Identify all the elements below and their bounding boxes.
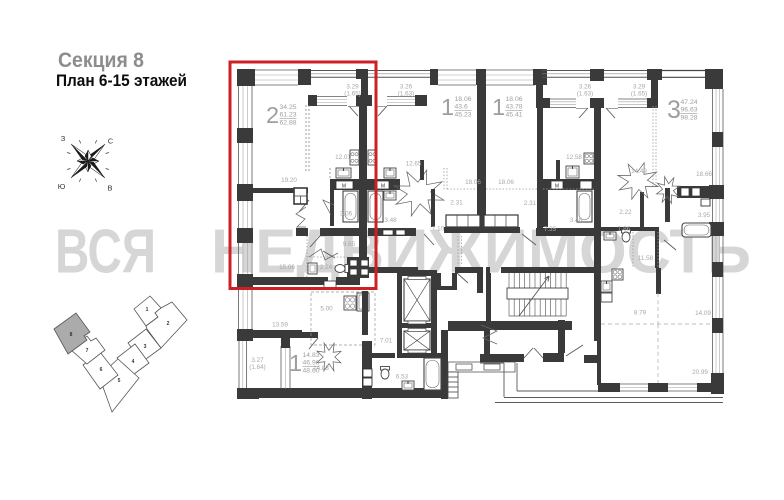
svg-text:М: М (381, 184, 385, 190)
svg-text:18.06: 18.06 (465, 179, 481, 186)
svg-text:47.24: 47.24 (681, 99, 698, 106)
svg-text:13.59: 13.59 (272, 322, 288, 329)
svg-text:3.29: 3.29 (346, 84, 359, 91)
svg-text:3.26: 3.26 (400, 84, 413, 91)
svg-text:34.25: 34.25 (280, 104, 297, 111)
svg-text:(1.63): (1.63) (398, 91, 414, 98)
svg-text:1: 1 (492, 94, 505, 120)
svg-text:19.20: 19.20 (281, 177, 297, 184)
svg-text:В: В (107, 184, 112, 193)
svg-text:11.58: 11.58 (638, 255, 654, 262)
svg-text:5: 5 (118, 378, 121, 384)
svg-text:7.01: 7.01 (380, 338, 393, 345)
svg-text:Секция 8: Секция 8 (58, 49, 144, 72)
svg-text:7: 7 (86, 348, 89, 354)
svg-text:18.06: 18.06 (498, 179, 514, 186)
svg-text:12.65: 12.65 (406, 161, 422, 168)
svg-text:7.10: 7.10 (432, 226, 445, 233)
svg-text:4: 4 (132, 359, 135, 365)
svg-text:14.49: 14.49 (631, 168, 647, 175)
svg-text:С: С (108, 137, 114, 146)
svg-text:8.79: 8.79 (634, 310, 647, 317)
svg-text:(1.65): (1.65) (344, 91, 360, 98)
svg-text:(1.64): (1.64) (249, 364, 265, 371)
svg-text:14.09: 14.09 (695, 310, 711, 317)
svg-text:3: 3 (144, 344, 147, 350)
svg-text:2.31: 2.31 (524, 200, 537, 207)
svg-text:Ю: Ю (58, 182, 66, 191)
svg-text:3.27: 3.27 (251, 357, 264, 364)
svg-text:46.96: 46.96 (303, 360, 320, 367)
svg-text:1: 1 (289, 350, 302, 376)
svg-text:1: 1 (146, 307, 149, 313)
svg-text:6.53: 6.53 (396, 374, 409, 381)
svg-text:3.48: 3.48 (570, 217, 583, 224)
svg-text:План 6-15 этажей: План 6-15 этажей (56, 71, 187, 90)
svg-text:43.6: 43.6 (455, 104, 468, 111)
svg-text:96.63: 96.63 (681, 107, 698, 114)
svg-text:6: 6 (100, 367, 103, 373)
svg-text:8: 8 (70, 332, 73, 338)
svg-text:1.86: 1.86 (618, 226, 631, 233)
svg-text:20.99: 20.99 (692, 369, 708, 376)
svg-text:48.60: 48.60 (303, 368, 320, 375)
svg-text:12.01: 12.01 (335, 154, 351, 161)
svg-text:45.41: 45.41 (506, 112, 523, 119)
svg-text:18.66: 18.66 (696, 171, 712, 178)
svg-text:(1.63): (1.63) (577, 91, 593, 98)
svg-text:З: З (61, 134, 66, 143)
svg-text:3.06: 3.06 (340, 211, 353, 218)
svg-text:2.22: 2.22 (619, 209, 632, 216)
svg-text:(1.65): (1.65) (631, 91, 647, 98)
svg-text:14.83: 14.83 (303, 352, 320, 359)
svg-text:7.35: 7.35 (544, 226, 557, 233)
svg-text:45.23: 45.23 (455, 112, 472, 119)
svg-text:18.06: 18.06 (506, 96, 523, 103)
svg-text:61.23: 61.23 (280, 112, 297, 119)
svg-text:3.29: 3.29 (633, 84, 646, 91)
svg-text:98.28: 98.28 (681, 115, 698, 122)
svg-text:15.06: 15.06 (279, 264, 295, 271)
svg-text:2: 2 (266, 102, 279, 128)
svg-text:ВСЯ: ВСЯ (55, 218, 156, 287)
svg-text:3.95: 3.95 (698, 212, 711, 219)
svg-text:62.88: 62.88 (280, 120, 297, 127)
svg-text:2.31: 2.31 (450, 200, 463, 207)
svg-text:2.24: 2.24 (320, 264, 333, 271)
svg-text:3.48: 3.48 (384, 217, 397, 224)
svg-text:5.00: 5.00 (320, 306, 333, 313)
svg-text:М: М (342, 184, 346, 190)
svg-text:3: 3 (667, 96, 681, 124)
svg-text:2: 2 (167, 321, 170, 327)
svg-text:12.58: 12.58 (566, 154, 582, 161)
svg-text:43.78: 43.78 (506, 104, 523, 111)
svg-text:3.26: 3.26 (579, 84, 592, 91)
svg-text:9.65: 9.65 (343, 241, 356, 248)
svg-text:18.06: 18.06 (455, 96, 472, 103)
svg-text:1: 1 (441, 94, 454, 120)
